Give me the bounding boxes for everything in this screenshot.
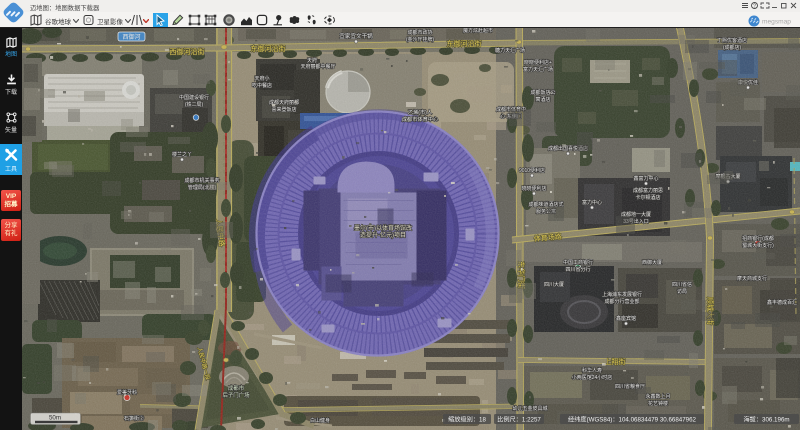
svg-text:megsmap: megsmap: [762, 19, 791, 26]
svg-text:经纬度(WGS84)：104.06834479 30.66: 经纬度(WGS84)：104.06834479 30.66847962: [568, 416, 697, 424]
svg-text:?: ?: [753, 4, 756, 10]
svg-text:缩放级别：18: 缩放级别：18: [448, 416, 486, 424]
svg-text:比例尺：1:2257: 比例尺：1:2257: [497, 416, 541, 424]
svg-text:海拔：306.196m: 海拔：306.196m: [743, 416, 789, 424]
svg-text:50m: 50m: [49, 415, 61, 422]
